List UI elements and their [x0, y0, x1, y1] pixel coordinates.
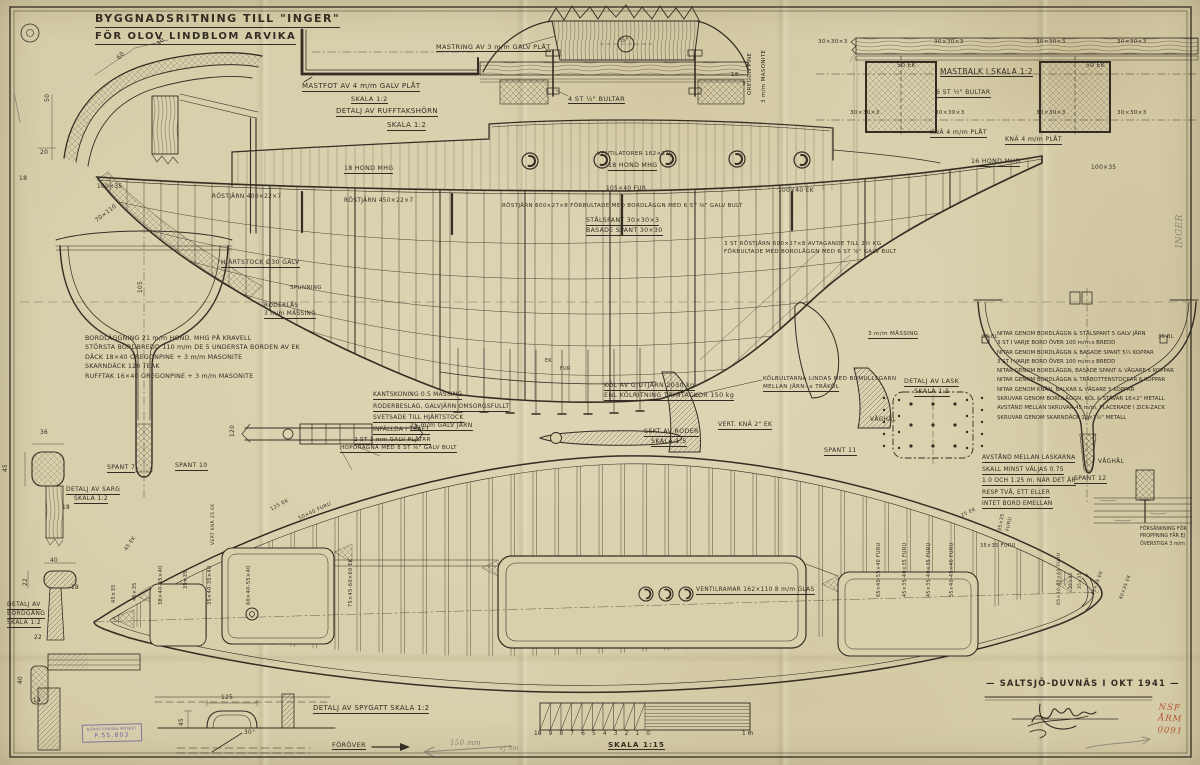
text-line: SKRUVAR GENOM SKARNDÄCK 12×1½" METALL	[997, 414, 1174, 423]
annotation-label: RODERLÅS	[264, 304, 298, 310]
annotation-label: DETALJ AV LASK	[904, 379, 959, 387]
text-line: NITAR GENOM BORDLÄGGN & BASADE SPANT 5½ …	[997, 349, 1174, 358]
detail-sarg	[25, 444, 64, 546]
annotation-label: 50	[45, 94, 51, 102]
annotation-label: 30×30×3	[1036, 40, 1066, 46]
annotation-label: EK	[545, 360, 552, 365]
annotation-label: 45×35	[133, 582, 138, 601]
text-line: FÖRSÄNKNING FÖR	[1140, 526, 1187, 533]
annotation-label: 50 EK	[897, 63, 916, 69]
scale-number: 2	[625, 731, 629, 737]
annotation-label: DETALJ AV SARG	[66, 487, 120, 495]
text-line: AVSTÅND MELLAN LASKARNA	[982, 453, 1075, 463]
annotation-label: 55×40-45×40 FURU	[951, 543, 956, 597]
annotation-label: 40	[50, 559, 58, 565]
annotation-label: SPANT 7	[107, 465, 135, 473]
annotation-label: RÖSTJÄRN 600×27×8 FÖRBULTADE MED BORDLÄG…	[502, 204, 743, 210]
text-line: 3 ST I VARJE BORD ÖVER 100 m/m:s BREDD	[997, 358, 1174, 367]
annotation-label: 35×35	[1070, 572, 1074, 589]
annotation-label: KÖLBULTARNA LINDAS MED BOMULLSGARN	[763, 377, 896, 383]
text-line: AVSTÅND MELLAN SKRUVAR 45 m/m, PLACERADE…	[997, 404, 1174, 413]
annotation-label: 65×40-45×40 FURU	[1058, 553, 1063, 605]
annotation-label: SKALA 1:2	[351, 96, 388, 104]
archive-line: 0091	[1157, 725, 1183, 738]
annotation-label: INGER	[1176, 214, 1185, 248]
text-line: KANTSKONING 0.5 MÄSSING	[373, 390, 462, 400]
signature	[985, 697, 1152, 738]
annotation-label: 35 BL	[1158, 335, 1174, 340]
annotation-label: 22	[34, 636, 42, 642]
annotation-label: FÖRÖVER	[332, 742, 366, 750]
annotation-label: MASTFOT AV 4 m/m GALV PLÅT	[302, 83, 420, 92]
text-line: SKALL MINST VÄLJAS 0.75	[982, 465, 1064, 475]
scale-bar-end-label: 1 m	[742, 731, 753, 737]
archive-number: NSF ÅRM 0091	[1157, 702, 1184, 738]
text-line: NITAR GENOM KNÄN, BALKAR & VÄGARE 5 KOPP…	[997, 386, 1174, 395]
annotation-label: SPUNNING	[290, 286, 322, 292]
annotation-label: 18	[71, 586, 79, 592]
annotation-label: SPANT 12	[1074, 476, 1107, 484]
annotation-label: SKALA 1:5	[651, 439, 687, 447]
scale-number: 7	[570, 731, 574, 737]
annotation-label: 125	[221, 696, 233, 702]
text-line: RESP TVÅ, ETT ELLER	[982, 488, 1050, 498]
annotation-label: 65×40-55×40 FURU	[878, 543, 883, 597]
text-line: ÖVERSTIGA 3 m/m	[1140, 541, 1187, 548]
text-line: RODERBESLAG, GALVJÄRN OMSORGSFULLT	[373, 402, 509, 412]
place-date: — SALTSJÖ-DUVNÄS I OKT 1941 —	[986, 678, 1180, 688]
annotation-label: 30°	[244, 731, 255, 737]
title-line2: FÖR OLOV LINDBLOM ARVIKA	[95, 31, 296, 45]
annotation-label: MELLAN JÄRN- o TRÄKÖL	[763, 385, 839, 392]
annotation-label: 4 ST ½" BULTAR	[568, 96, 625, 104]
annotation-label: 40	[19, 676, 25, 684]
detail-lask	[883, 386, 983, 466]
annotation-label: 36	[40, 431, 48, 437]
annotation-label: DETALJ AV	[7, 602, 41, 610]
annotation-label: HJÄRTSTOCK Ø30 GALV	[221, 260, 300, 268]
scale-number: 1	[635, 731, 639, 737]
text-line: SKARNDÄCK 120 TEAK	[85, 362, 300, 371]
annotation-label: 105×40 FUR	[606, 187, 646, 193]
annotation-label: 16 HOND MHG	[971, 159, 1020, 167]
annotation-label: 18 HOND MHG	[344, 166, 393, 174]
annotation-label: 45×35-40×35 FURU	[904, 543, 909, 597]
lask-spacing-note: AVSTÅND MELLAN LASKARNASKALL MINST VÄLJA…	[982, 453, 1076, 511]
museum-stamp: SJÖHISTORISKA MUSEET P.55.803	[82, 723, 142, 743]
annotation-label: 38×40-45×40	[159, 566, 164, 605]
annotation-label: VÅGHÅL	[870, 418, 896, 424]
annotation-label: SPANT 11	[824, 448, 857, 456]
annotation-label: 18	[731, 73, 739, 79]
annotation-label: ENL KÖLRITNING TRIMTACKOR 150 kg	[604, 393, 734, 401]
text-line: BORDLÄGGNING 21 m/m HOND. MHG PÅ KRAVELL	[85, 334, 300, 343]
annotation-label: RÖSTJÄRN 450×22×7	[344, 199, 413, 205]
annotation-label: 35×35 FURU	[980, 544, 1016, 549]
annotation-label: STÅLSPANT 30×30×3	[586, 218, 659, 226]
annotation-label: 20	[40, 150, 48, 156]
text-line: STÖRSTA BORDBREDD 110 m/m DE 5 UNDERSTA …	[85, 343, 300, 352]
annotation-label: 30×30×3	[934, 40, 964, 46]
annotation-label: ½"	[619, 37, 629, 44]
text-line: INTET BORD EMELLAN	[982, 499, 1053, 509]
annotation-label: SEKT AV RODER	[644, 429, 699, 437]
text-line: DÄCK 18×40 OREGONPINE + 3 m/m MASONITE	[85, 353, 300, 362]
annotation-label: 105	[139, 281, 145, 293]
annotation-label: 120	[231, 425, 237, 437]
annotation-label: SPANT 10	[175, 463, 208, 471]
annotation-label: 35×35	[184, 570, 189, 589]
annotation-label: 30×30×3	[818, 40, 848, 46]
scale-number: 5	[592, 731, 596, 737]
scale-number: 8	[559, 731, 563, 737]
countersink-note: FÖRSÄNKNING FÖRPROPPNING FÅR EJÖVERSTIGA…	[1140, 526, 1187, 548]
scale-number: 6	[581, 731, 585, 737]
annotation-label: SKALA 1:2	[387, 122, 426, 131]
scale-number: 4	[603, 731, 607, 737]
annotation-label: 100×40 EK	[778, 189, 814, 195]
text-line: RUFFTAK 16×40 OREGONPINE + 3 m/m MASONIT…	[85, 372, 300, 381]
annotation-label: 35×40-35×40	[208, 566, 213, 605]
detail-spygatt	[155, 694, 410, 753]
annotation-label: 45	[180, 718, 186, 726]
text-line: SKRUVAR GENOM BORDLÄGGN, KÖL & STÄVAR 16…	[997, 395, 1174, 404]
annotation-label: 3 m/m MASONITE	[762, 50, 768, 103]
annotation-label: VERT KNÄ 25 EK	[212, 503, 217, 545]
annotation-label: 3 ST RÖSTJÄRN 600×27×8 AVTAGANDE TILL 2½…	[724, 242, 882, 248]
text-line: NITAR GENOM BORDLÄGGN & STÅLSPANT 5 GALV…	[997, 330, 1174, 339]
annotation-label: 30×30×3	[935, 111, 965, 117]
annotation-label: MASTRING AV 3 m/m GALV PLÅT	[436, 44, 551, 52]
annotation-label: KNÄ 4 m/m PLÅT	[930, 130, 987, 138]
scale-caption: SKALA 1:15	[608, 740, 665, 750]
annotation-label: 75×45-60×60 EK	[349, 558, 354, 607]
pencil-spar	[850, 54, 857, 182]
annotation-label: HOPDRAGNA MED 8 ST ⅜" GALV BULT	[340, 446, 457, 453]
text-line: PROPPNING FÅR EJ	[1140, 533, 1187, 540]
annotation-label: RÖSTJÄRN 400×22×7	[212, 195, 281, 201]
scale-number: 10	[534, 731, 541, 737]
annotation-label: 45×35-40×35 FURU	[928, 543, 933, 597]
annotation-label: 14	[33, 699, 41, 705]
detail-forsankning	[1094, 470, 1192, 523]
annotation-label: VENTILATORER 162×110	[597, 152, 673, 158]
annotation-label: 45	[4, 464, 10, 472]
annotation-label: 30×30×3	[1117, 40, 1147, 46]
annotation-label: VENTILRAMAR 162×110 8 m/m GLAS	[696, 588, 815, 595]
annotation-label: 45×35	[112, 584, 117, 603]
detail-bordgang	[28, 563, 140, 750]
detail-rufftakshorn	[38, 40, 262, 166]
annotation-label: KÖL AV GJUTJÄRN 2030 kg	[604, 383, 695, 391]
annotation-label: 60×40-55×40	[247, 566, 252, 605]
annotation-label: 100×35	[97, 185, 122, 191]
drawing-title: BYGGNADSRITNING TILL "INGER" FÖR OLOV LI…	[95, 12, 340, 45]
annotation-label: OREGON PINE	[748, 53, 754, 95]
annotation-label: 18 HOND MHG	[608, 163, 657, 171]
museum-stamp-line2: P.55.803	[87, 731, 137, 739]
riveting-spec-block: NITAR GENOM BORDLÄGGN & STÅLSPANT 5 GALV…	[997, 330, 1174, 423]
annotation-label: 25 m/m GALV JÄRN	[410, 423, 473, 431]
title-line1: BYGGNADSRITNING TILL "INGER"	[95, 12, 340, 28]
annotation-label: KNÄ 4 m/m PLÅT	[1005, 137, 1062, 145]
annotation-label: 3 m/m MÄSSING	[264, 312, 316, 319]
annotation-label: 150 mm	[450, 740, 481, 747]
annotation-label: SKALA 1:2	[74, 496, 108, 504]
scale-number: 0	[646, 731, 650, 737]
annotation-label: 3	[742, 82, 746, 88]
annotation-label: 22	[24, 578, 30, 586]
annotation-label: DETALJ AV SPYGATT SKALA 1:2	[313, 705, 429, 714]
annotation-label: FUR	[560, 368, 571, 373]
annotation-label: 18	[19, 176, 27, 182]
annotation-label: 30×30×3	[1117, 111, 1147, 117]
planking-spec-block: BORDLÄGGNING 21 m/m HOND. MHG PÅ KRAVELL…	[85, 334, 300, 381]
annotation-label: BASADE SPANT 30×30	[586, 228, 663, 236]
annotation-label: MASTBALK I SKALA 1:2	[940, 68, 1033, 77]
blueprint-sheet: BYGGNADSRITNING TILL "INGER" FÖR OLOV LI…	[0, 0, 1200, 765]
annotation-label: 35 BL	[982, 335, 998, 340]
annotation-label: 6 ST ½" BULTAR	[936, 90, 991, 98]
annotation-label: 35×35	[1079, 572, 1083, 589]
annotation-label: VERT. KNÄ 2" EK	[718, 422, 772, 430]
text-line: 1.0 OCH 1.25 m. NÄR DET ÄR	[982, 476, 1076, 486]
scale-number: 3	[614, 731, 618, 737]
text-line: 3 ST I VARJE BORD ÖVER 100 m/m:s BREDD	[997, 339, 1174, 348]
annotation-label: DETALJ AV RUFFTAKSHÖRN	[336, 108, 438, 117]
annotation-label: 100×35	[1091, 166, 1116, 172]
annotation-label: FÖRBULTADE MED BORDLÄGGN MED 6 ST ⅞" GAL…	[724, 250, 896, 256]
annotation-label: 3 m/m MÄSSING	[868, 332, 918, 339]
text-line: NITAR GENOM BORDLÄGGN, BASADE SPANT & VÄ…	[997, 367, 1174, 376]
annotation-label: SKALA 1:5	[914, 389, 950, 397]
annotation-label: ej hm	[500, 746, 519, 752]
scale-bar-numbers: 109876543210	[534, 731, 650, 737]
detail-mastbalk	[816, 38, 1198, 134]
annotation-label: SKALA 1:2	[7, 620, 41, 628]
annotation-label: VÅGHÅL	[1098, 460, 1124, 466]
scale-number: 9	[549, 731, 553, 737]
annotation-label: 50 EK	[1086, 63, 1105, 69]
annotation-label: 30×30×3	[850, 111, 880, 117]
text-line: NITAR GENOM BORDLÄGGN & TRÄBOTTENSTOCKAR…	[997, 376, 1174, 385]
annotation-label: 18	[62, 506, 70, 512]
annotation-label: BORDGÅNG	[7, 611, 45, 619]
detail-mastring	[480, 5, 748, 104]
annotation-label: 30×30×3	[1036, 111, 1066, 117]
